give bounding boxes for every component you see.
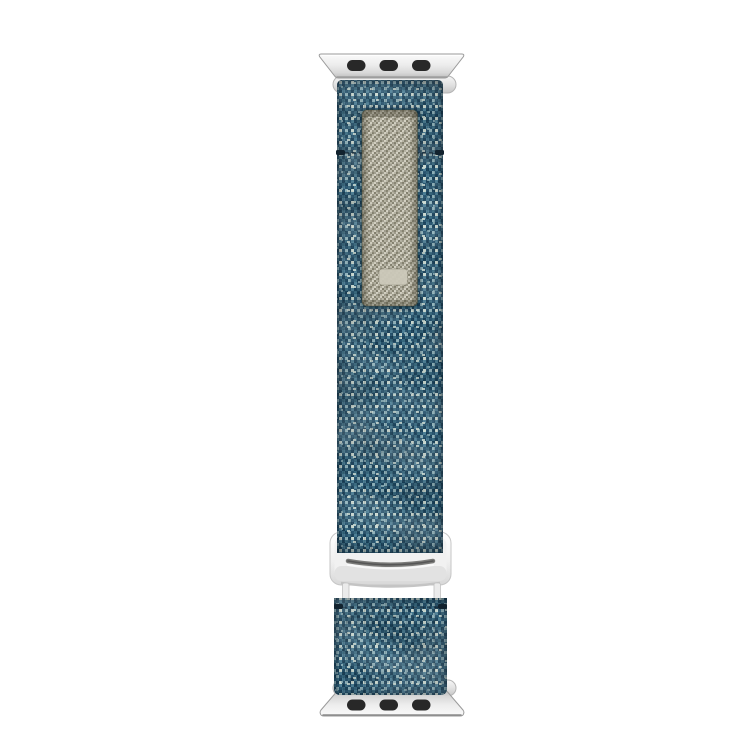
bottom-adapter-slot-2	[380, 700, 399, 711]
watch-band-illustration	[0, 0, 750, 750]
patch-right-edge-shade	[410, 110, 418, 306]
top-adapter-slot-1	[347, 60, 366, 71]
bottom-adapter-slot-1	[347, 700, 366, 711]
upper-seam-notch-left	[336, 150, 345, 155]
bottom-adapter-slot-3	[412, 700, 431, 711]
loop-left-edge-shade	[334, 598, 341, 695]
lower-seam-notch-left	[334, 604, 343, 609]
strap-buckle-tuck-shadow	[337, 543, 443, 553]
loop-right-edge-shade	[440, 598, 447, 695]
top-lug-adapter	[319, 54, 464, 78]
strap-top-shadow	[337, 80, 443, 91]
patch-left-edge-shade	[362, 110, 370, 306]
loop-top-shadow	[334, 598, 447, 607]
loop-bottom-shadow	[334, 686, 447, 695]
product-photo-canvas	[0, 0, 750, 750]
upper-seam-notch-right	[435, 150, 444, 155]
patch-embossed-label	[379, 269, 408, 285]
pull-tab-patch	[361, 109, 420, 309]
lower-seam-notch-right	[438, 604, 447, 609]
top-adapter-slot-2	[380, 60, 399, 71]
patch-top-shade	[362, 110, 418, 117]
top-adapter-slot-3	[412, 60, 431, 71]
patch-bottom-shade	[362, 300, 418, 306]
